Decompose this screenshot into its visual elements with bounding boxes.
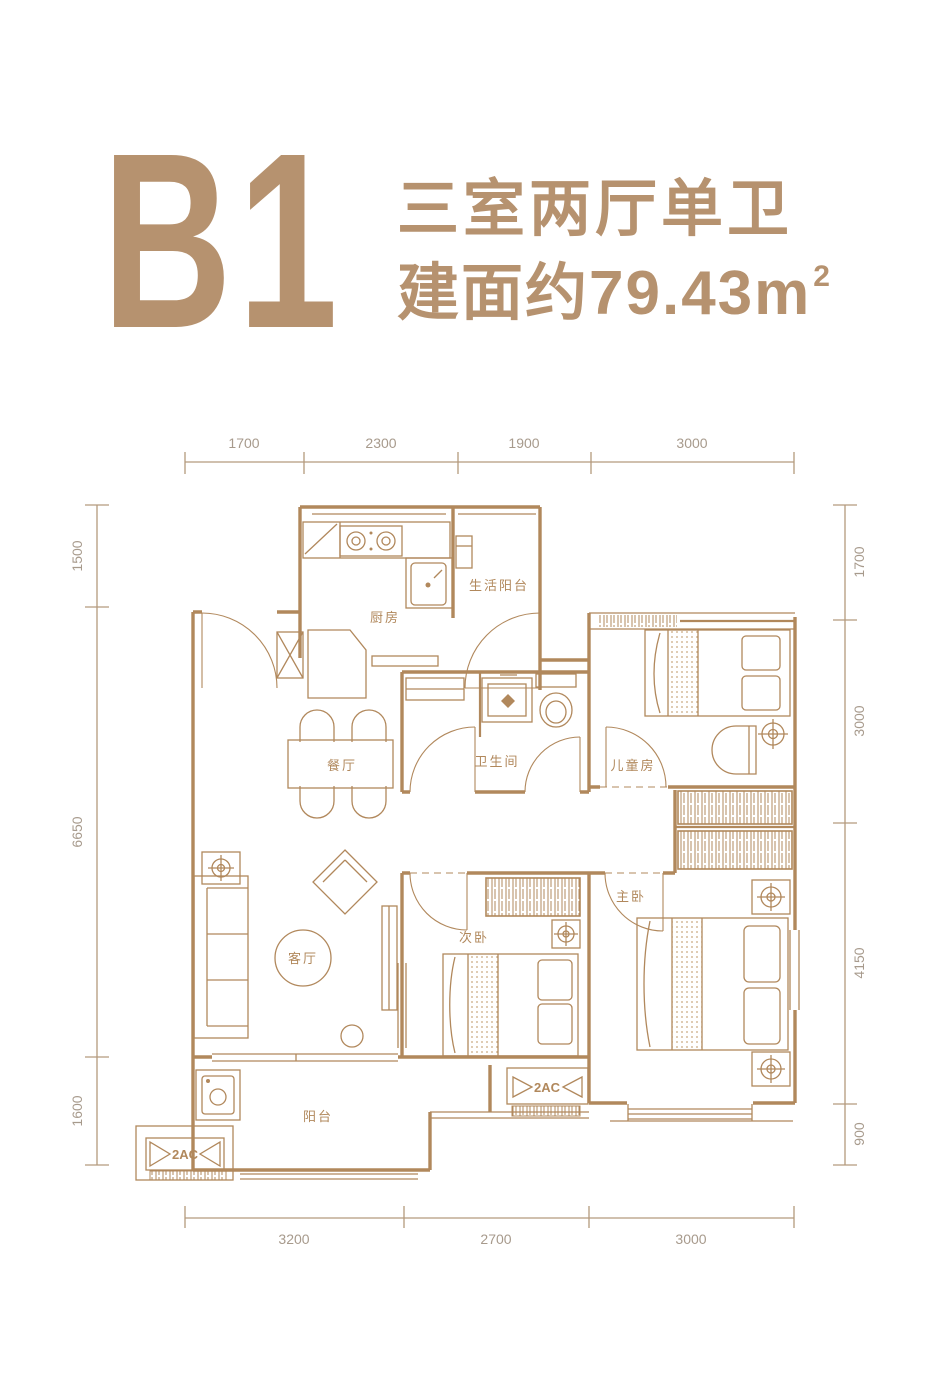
stove-icon bbox=[340, 526, 402, 556]
washing-machine-icon bbox=[196, 1070, 240, 1120]
chair-icon bbox=[300, 786, 334, 818]
dimension-top: 1700 2300 1900 3000 bbox=[185, 435, 794, 474]
area-superscript: 2 bbox=[813, 260, 832, 293]
room-label-service-balcony: 生活阳台 bbox=[469, 578, 529, 593]
dim-label: 2700 bbox=[480, 1231, 511, 1247]
dimension-bottom: 3200 2700 3000 bbox=[185, 1206, 794, 1247]
ac-platform-left: 2AC bbox=[136, 1126, 233, 1180]
sofa-icon bbox=[194, 876, 248, 1038]
second-nightstand-icon bbox=[552, 920, 580, 948]
second-wardrobe-icon bbox=[486, 878, 580, 916]
dim-label: 1700 bbox=[228, 435, 259, 451]
floor-lamp-icon bbox=[202, 852, 240, 884]
ceiling-lamp-icon bbox=[758, 719, 788, 749]
cushion-icon bbox=[313, 850, 377, 914]
room-label-kids: 儿童房 bbox=[610, 758, 655, 773]
area-description: 建面约79.43m2 bbox=[397, 260, 832, 328]
floorplan-page: B1 三室两厅单卫 建面约79.43m2 1700 2300 1900 3000… bbox=[0, 0, 933, 1400]
service-balcony-door-arc bbox=[465, 613, 540, 688]
dimension-left: 1500 6650 1600 bbox=[69, 505, 109, 1165]
dim-label: 2300 bbox=[365, 435, 396, 451]
bathroom-door-arc bbox=[410, 727, 475, 792]
dim-label: 1500 bbox=[69, 540, 85, 571]
title-block: 三室两厅单卫 建面约79.43m2 bbox=[397, 176, 832, 328]
ac-unit-label: 2AC bbox=[534, 1080, 561, 1095]
dim-label: 3000 bbox=[676, 435, 707, 451]
kids-wardrobe-icon bbox=[678, 791, 792, 824]
nightstand-icon bbox=[752, 1052, 790, 1086]
chair-icon bbox=[352, 786, 386, 818]
room-label-second: 次卧 bbox=[459, 930, 489, 945]
room-label-dining: 餐厅 bbox=[327, 758, 357, 773]
kitchen-sink-icon bbox=[411, 563, 446, 605]
kids-room-door-arc bbox=[600, 727, 668, 787]
second-bed-icon bbox=[443, 954, 578, 1056]
second-bedroom-door-arc bbox=[410, 873, 467, 930]
side-table-icon bbox=[341, 1025, 363, 1047]
dimension-right: 1700 3000 4150 900 bbox=[833, 505, 867, 1165]
entry-door-arc bbox=[202, 613, 277, 688]
water-heater-icon bbox=[456, 536, 472, 568]
room-label-bathroom: 卫生间 bbox=[474, 754, 519, 769]
vanity-sink-icon bbox=[482, 675, 532, 722]
window-mullions bbox=[599, 615, 677, 627]
dim-label: 3200 bbox=[278, 1231, 309, 1247]
kids-bed-icon bbox=[645, 630, 790, 716]
dim-label: 4150 bbox=[851, 947, 867, 978]
room-label-balcony: 阳台 bbox=[303, 1109, 333, 1124]
ac-unit-label: 2AC bbox=[172, 1147, 199, 1162]
room-label-kitchen: 厨房 bbox=[370, 610, 400, 625]
unit-name: B1 bbox=[102, 116, 344, 366]
master-bed-icon bbox=[637, 918, 788, 1050]
dim-label: 6650 bbox=[69, 816, 85, 847]
layout-description: 三室两厅单卫 bbox=[397, 176, 832, 244]
chair-icon bbox=[352, 710, 386, 742]
tv-cabinet-icon bbox=[382, 906, 397, 1010]
dim-label: 900 bbox=[851, 1122, 867, 1146]
dim-label: 1900 bbox=[508, 435, 539, 451]
kids-desk-icon bbox=[712, 726, 756, 774]
ac-platform-middle: 2AC bbox=[507, 1068, 588, 1116]
entry-console bbox=[372, 656, 438, 666]
toilet-icon bbox=[536, 674, 576, 727]
chair-icon bbox=[300, 710, 334, 742]
dim-label: 1600 bbox=[69, 1095, 85, 1126]
room-label-living: 客厅 bbox=[288, 951, 318, 966]
toilet-door-arc bbox=[525, 737, 580, 792]
nightstand-icon bbox=[752, 880, 790, 914]
dim-label: 3000 bbox=[851, 705, 867, 736]
master-wardrobe-icon bbox=[678, 831, 792, 869]
dim-label: 1700 bbox=[851, 546, 867, 577]
area-text: 建面约79.43m bbox=[397, 259, 811, 328]
dim-label: 3000 bbox=[675, 1231, 706, 1247]
room-label-master: 主卧 bbox=[616, 889, 646, 904]
doors bbox=[202, 613, 668, 931]
